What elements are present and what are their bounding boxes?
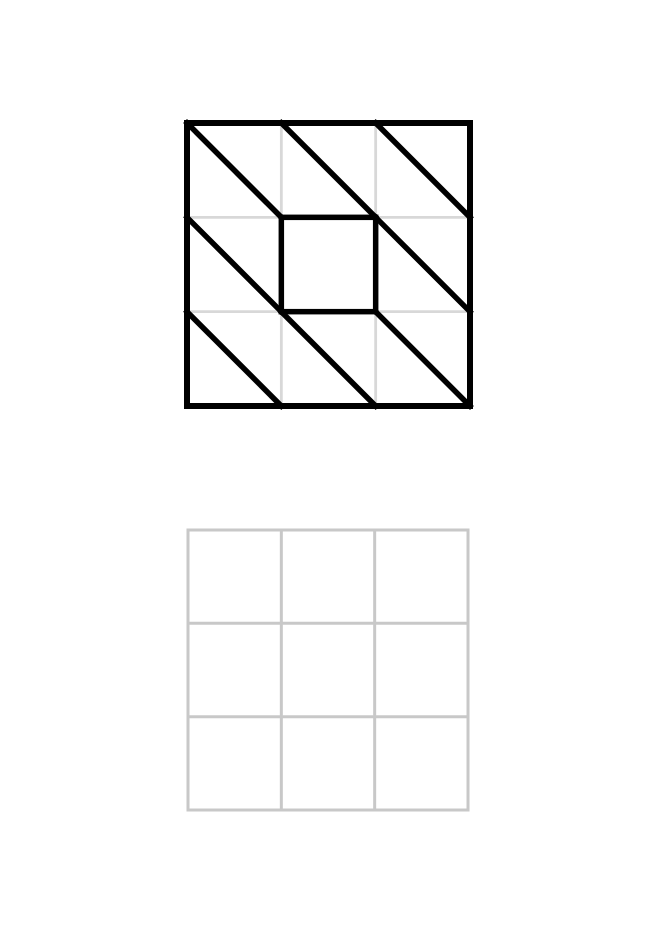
- pattern-diagonal-line: [376, 123, 470, 217]
- pattern-diagonal-line: [187, 123, 281, 217]
- pattern-diagonal-line: [187, 217, 281, 311]
- pattern-diagonal-line: [376, 312, 470, 406]
- worksheet-canvas: [0, 0, 656, 927]
- copy-grid-outer-border: [188, 530, 468, 810]
- pattern-diagonal-line: [376, 217, 470, 311]
- pattern-diagonal-line: [281, 312, 375, 406]
- pattern-diagonal-line: [187, 312, 281, 406]
- pattern-diagonal-line: [281, 123, 375, 217]
- worksheet-page: [0, 0, 656, 927]
- pattern-center-square: [281, 217, 375, 311]
